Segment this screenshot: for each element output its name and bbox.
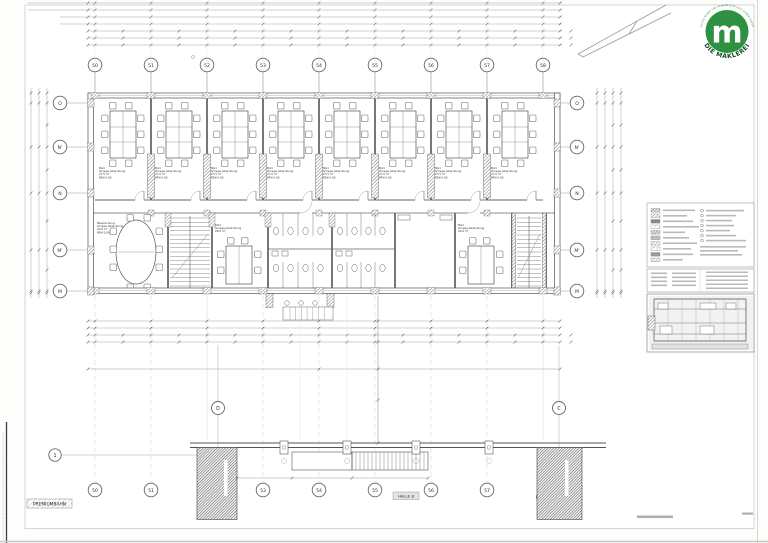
text-bar <box>700 246 746 248</box>
chair <box>218 267 225 274</box>
grid-bubble-right-label: M <box>575 289 579 295</box>
chair <box>194 131 201 138</box>
chair <box>110 103 117 110</box>
chair <box>334 160 341 167</box>
entrance-pier <box>266 294 273 308</box>
chair <box>530 147 537 154</box>
wall-pier <box>483 93 491 99</box>
chair <box>406 103 413 110</box>
chair <box>194 115 201 122</box>
entrance-column <box>299 301 304 306</box>
text-bar <box>706 284 748 286</box>
chair <box>255 267 262 274</box>
chair <box>438 131 445 138</box>
chair <box>494 131 501 138</box>
pier-column <box>165 213 171 227</box>
legend-swatch <box>651 236 660 240</box>
chair <box>418 115 425 122</box>
pier-column <box>329 213 335 227</box>
axis-bubble-d-label: D <box>216 406 220 412</box>
chair <box>530 131 537 138</box>
text-bar <box>706 272 748 274</box>
chair <box>138 131 145 138</box>
pier-column <box>260 154 267 198</box>
text-bar <box>706 230 730 232</box>
stair-wall <box>543 213 547 288</box>
grid-bubble-top-label: 53 <box>260 63 266 69</box>
chair <box>350 103 357 110</box>
pier-column <box>484 210 490 216</box>
text-bar <box>672 273 696 275</box>
chair <box>390 103 397 110</box>
wall-pier <box>88 287 95 295</box>
grid-bubble-left-label: M' <box>57 248 62 254</box>
text-bar <box>700 250 738 252</box>
floor-plan-drawing: 505051515252535354545555565657575858OON'… <box>0 0 768 543</box>
office-room-label-line: BRH 0,90 <box>435 175 448 179</box>
wall-pier <box>554 246 561 254</box>
chair <box>406 160 413 167</box>
chair <box>326 147 333 154</box>
wall-pier <box>203 288 211 295</box>
chair <box>362 147 369 154</box>
legend-swatch <box>651 209 660 213</box>
chair <box>110 264 117 271</box>
pier-column <box>316 154 323 198</box>
wc-fixture <box>366 264 371 271</box>
grid-bubble-top-label: 51 <box>148 63 154 69</box>
wall-pier <box>427 288 435 295</box>
pier-column <box>204 154 211 198</box>
text-bar <box>663 232 685 234</box>
text-bar <box>663 226 699 228</box>
room-label-line: 26,4 m² <box>215 229 226 233</box>
keyplan-room <box>700 303 716 309</box>
chair <box>484 238 491 245</box>
office-room-label-line: BRH 0,90 <box>323 175 336 179</box>
text-bar <box>706 220 732 222</box>
grid-bubble-left-label: O <box>58 101 62 107</box>
chair <box>138 147 145 154</box>
interior-wall <box>454 213 456 288</box>
wall-pier <box>427 93 435 99</box>
legend-swatch <box>651 247 660 251</box>
chair <box>126 160 133 167</box>
chair <box>382 115 389 122</box>
legend-swatch <box>651 225 660 229</box>
wc-fixture <box>366 227 371 234</box>
chair <box>470 238 477 245</box>
entrance-pier <box>327 294 334 308</box>
chair <box>474 115 481 122</box>
wc-fixture <box>288 264 293 271</box>
pier-column <box>316 210 322 216</box>
chair <box>446 160 453 167</box>
chair <box>418 147 425 154</box>
chair <box>474 147 481 154</box>
wall-pier <box>88 246 95 254</box>
chair <box>438 115 445 122</box>
chair <box>438 147 445 154</box>
chair <box>474 131 481 138</box>
text-bar <box>706 288 748 290</box>
wc-fixture <box>352 264 357 271</box>
wall-pier <box>554 287 561 295</box>
room-label-line: 26,4 m² <box>458 229 469 233</box>
grid-bubble-bottom-label: 57 <box>484 488 490 494</box>
chair <box>497 251 504 258</box>
wc-fixture <box>318 227 323 234</box>
wall-pier <box>259 93 267 99</box>
keyplan-strip <box>652 344 748 349</box>
chair <box>518 160 525 167</box>
legend-swatch <box>651 242 660 246</box>
text-bar <box>706 280 748 282</box>
halle-label: HALLE B <box>398 494 415 499</box>
text-bar <box>706 240 746 242</box>
stair-wall <box>512 213 516 288</box>
text-bar <box>663 254 693 256</box>
chair <box>462 103 469 110</box>
chair <box>326 115 333 122</box>
entrance-column <box>313 301 318 306</box>
wc-fixture <box>337 264 342 271</box>
chair <box>222 103 229 110</box>
wall-pier <box>91 93 99 99</box>
grid-bubble-top-label: 52 <box>204 63 210 69</box>
chair <box>502 103 509 110</box>
chair <box>110 228 117 235</box>
cabinet <box>440 215 452 220</box>
chair <box>270 115 277 122</box>
grid-bubble-bottom-label: 56 <box>428 488 434 494</box>
chair <box>494 147 501 154</box>
grid-bubble-left-label: M <box>58 289 62 295</box>
pier-column <box>372 154 379 198</box>
hall-column <box>280 441 288 454</box>
chair <box>362 115 369 122</box>
chair <box>228 238 235 245</box>
wall-pier <box>315 93 323 99</box>
legend-swatch <box>651 253 660 257</box>
grid-bubble-top-label: 56 <box>428 63 434 69</box>
wc-fixture <box>303 227 308 234</box>
chair <box>530 115 537 122</box>
text-bar <box>663 259 683 261</box>
chair <box>214 147 221 154</box>
chair <box>382 131 389 138</box>
wall-pier <box>315 288 323 295</box>
grid-bubble-bottom-label: 55 <box>372 488 378 494</box>
wc-fixture <box>273 264 278 271</box>
chair <box>218 251 225 258</box>
grid-bubble-bottom-label: 53 <box>260 488 266 494</box>
chair <box>182 103 189 110</box>
chair <box>418 131 425 138</box>
wc-fixture <box>352 227 357 234</box>
chair <box>306 115 313 122</box>
text-bar <box>706 225 734 227</box>
chair <box>238 103 245 110</box>
chair <box>462 160 469 167</box>
hall-column <box>412 441 420 454</box>
grid-bubble-right-label: O <box>575 101 579 107</box>
grid-bubble-left-label: N' <box>58 145 63 151</box>
chair <box>214 115 221 122</box>
legend-swatch <box>651 258 660 262</box>
chair <box>144 215 151 222</box>
chair <box>306 147 313 154</box>
sink <box>336 251 342 256</box>
text-bar <box>651 277 667 279</box>
entrance-steps <box>283 307 333 320</box>
wc-fixture <box>380 264 385 271</box>
wall-pier <box>371 288 379 295</box>
chair <box>156 264 163 271</box>
office-room-label-line: BRH 0,90 <box>491 175 504 179</box>
chair <box>390 160 397 167</box>
text-bar <box>672 281 696 283</box>
hall-column <box>343 441 351 454</box>
chair <box>222 160 229 167</box>
grid-bubble-top-label: 55 <box>372 63 378 69</box>
chair <box>502 160 509 167</box>
wall-pier <box>88 99 95 107</box>
chair <box>278 160 285 167</box>
legend-swatch <box>651 214 660 218</box>
text-bar <box>663 248 691 250</box>
drawing-sheet: 505051515252535354545555565657575858OON'… <box>0 0 768 543</box>
chair <box>270 147 277 154</box>
chair <box>350 160 357 167</box>
office-room-label-line: BRH 0,90 <box>155 175 168 179</box>
wc-fixture <box>288 227 293 234</box>
chair <box>214 131 221 138</box>
chair <box>158 147 165 154</box>
pier-slot <box>565 460 569 496</box>
chair <box>156 228 163 235</box>
chair <box>158 131 165 138</box>
wall-pier <box>539 93 547 99</box>
title-text-bar <box>637 516 673 519</box>
chair <box>278 103 285 110</box>
axis-bubble-1-label: 1 <box>53 453 56 459</box>
office-room-label-line: BRH 0,90 <box>99 175 112 179</box>
chair <box>270 131 277 138</box>
sheet-number-bar <box>742 513 753 515</box>
chair <box>238 160 245 167</box>
sink <box>346 251 352 256</box>
chair <box>382 147 389 154</box>
hall-pier-right <box>537 448 582 520</box>
chair <box>102 131 109 138</box>
office-room-label-line: BRH 0,90 <box>211 175 224 179</box>
wall-pier <box>539 288 547 295</box>
chair <box>460 267 467 274</box>
chair <box>494 115 501 122</box>
pier-column <box>428 210 434 216</box>
chair <box>446 103 453 110</box>
text-bar <box>706 215 736 217</box>
chair <box>102 147 109 154</box>
wall-pier <box>554 99 561 107</box>
logo-letter: m <box>711 16 742 51</box>
grid-bubble-bottom-label: 54 <box>316 488 322 494</box>
entrance-column <box>285 301 290 306</box>
chair <box>326 131 333 138</box>
grid-bubble-top-label: 58 <box>540 63 546 69</box>
hall-pier-left <box>197 448 237 520</box>
office-room-label-line: BRH 0,90 <box>267 175 280 179</box>
text-bar <box>672 277 696 279</box>
room-label-line: BRH 0,90 <box>97 230 110 234</box>
wall-pier <box>203 93 211 99</box>
cabinet <box>398 215 410 220</box>
grid-bubble-right-label: N' <box>575 145 580 151</box>
pier-column <box>148 154 155 198</box>
chair <box>166 160 173 167</box>
chair <box>306 131 313 138</box>
legend-swatch <box>651 220 660 224</box>
grid-bubble-top-label: 50 <box>92 63 98 69</box>
wall-pier <box>554 189 561 197</box>
grid-bubble-left-label: N <box>58 191 61 197</box>
text-bar <box>663 243 697 245</box>
chair <box>362 131 369 138</box>
wall-pier <box>88 189 95 197</box>
chair <box>460 251 467 258</box>
text-bar <box>663 221 693 223</box>
hall-column <box>485 441 493 454</box>
site-label: PREMIUMBAHN <box>33 502 66 508</box>
text-bar <box>663 237 689 239</box>
keyplan-room <box>726 303 736 309</box>
wall-pier <box>147 93 155 99</box>
keyplan-room <box>658 303 668 309</box>
chair <box>102 115 109 122</box>
wall-pier <box>483 288 491 295</box>
grid-bubble-top-label: 54 <box>316 63 322 69</box>
chair <box>110 160 117 167</box>
chair <box>250 147 257 154</box>
pier-column <box>484 154 491 198</box>
pier-slot <box>224 460 228 496</box>
pier-column <box>428 154 435 198</box>
wc-fixture <box>318 264 323 271</box>
text-bar <box>706 235 736 237</box>
chair <box>250 115 257 122</box>
chair <box>497 267 504 274</box>
interior-wall <box>394 213 396 288</box>
wc-fixture <box>380 227 385 234</box>
chair <box>182 160 189 167</box>
halle-label-group: HALLE B <box>393 492 419 500</box>
chair <box>242 238 249 245</box>
sink <box>282 251 288 256</box>
text-bar <box>651 273 667 275</box>
wall-pier <box>554 143 561 151</box>
text-bar <box>651 285 667 287</box>
chair <box>156 246 163 253</box>
wall-pier <box>371 93 379 99</box>
chair <box>126 103 133 110</box>
keyplan-annex <box>648 316 655 330</box>
chair <box>294 160 301 167</box>
site-label-group: PREMIUMBAHN <box>27 499 72 508</box>
keyplan-room <box>660 326 672 334</box>
text-bar <box>672 285 696 287</box>
text-bar <box>706 276 748 278</box>
pier-column <box>265 213 271 227</box>
chair <box>138 115 145 122</box>
grid-bubble-right-label: M' <box>574 248 579 254</box>
chair <box>127 215 134 222</box>
office-room-label-line: BRH 0,90 <box>379 175 392 179</box>
text-bar <box>663 210 695 212</box>
wall-pier <box>259 288 267 295</box>
legend-swatch <box>651 231 660 235</box>
wc-fixture <box>303 264 308 271</box>
sink <box>272 251 278 256</box>
grid-bubble-top-label: 57 <box>484 63 490 69</box>
chair <box>158 115 165 122</box>
chair <box>518 103 525 110</box>
text-bar <box>663 215 687 217</box>
wc-fixture <box>273 227 278 234</box>
chair <box>294 103 301 110</box>
chair <box>334 103 341 110</box>
grid-bubble-right-label: N <box>575 191 578 197</box>
wall-pier <box>147 288 155 295</box>
chair <box>250 131 257 138</box>
text-bar <box>700 254 742 256</box>
grid-bubble-bottom-label: 51 <box>148 488 154 494</box>
text-bar <box>651 281 667 283</box>
wc-fixture <box>337 227 342 234</box>
chair <box>166 103 173 110</box>
text-bar <box>706 210 744 212</box>
keyplan-room <box>700 326 714 334</box>
chair <box>110 246 117 253</box>
wall-pier <box>88 143 95 151</box>
chair <box>194 147 201 154</box>
chair <box>255 251 262 258</box>
grid-bubble-bottom-label: 50 <box>92 488 98 494</box>
